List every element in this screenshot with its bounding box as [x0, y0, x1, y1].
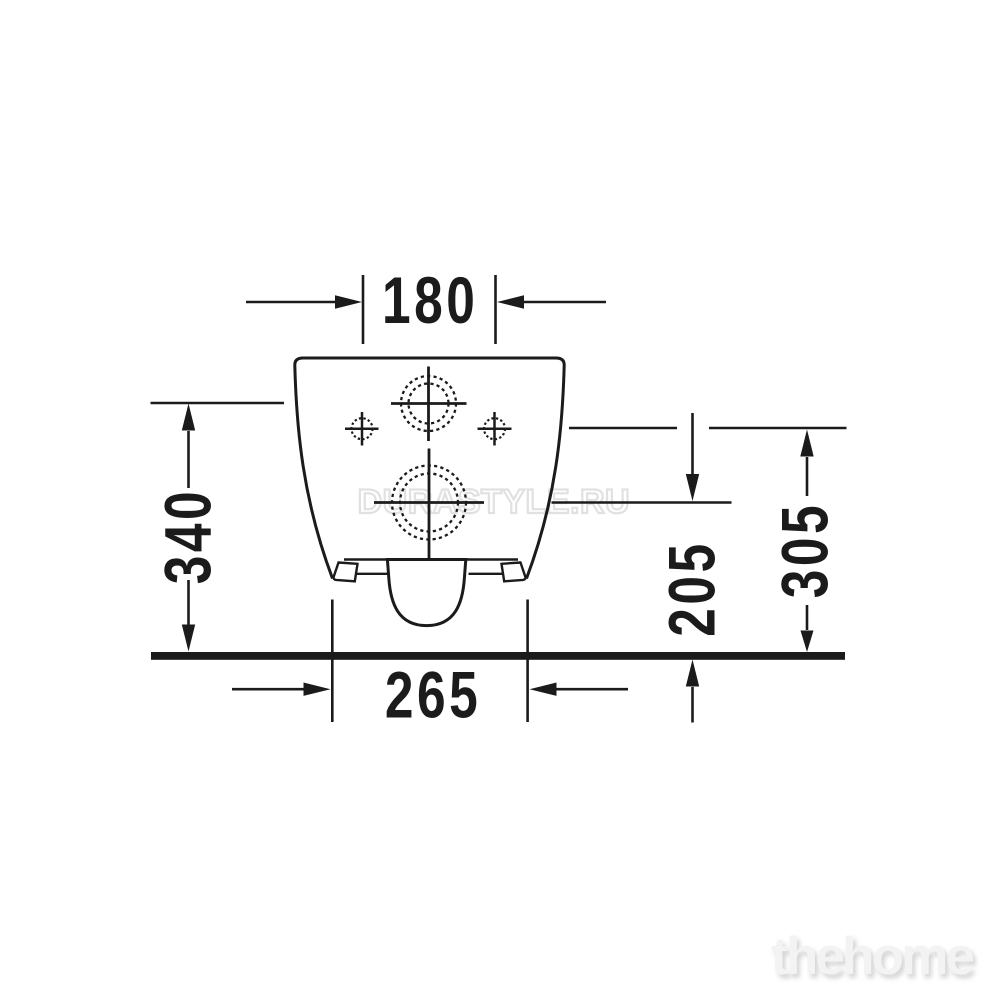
svg-text:180: 180: [382, 263, 478, 338]
svg-text:205: 205: [654, 540, 729, 636]
svg-text:305: 305: [767, 502, 842, 598]
svg-text:340: 340: [150, 488, 225, 584]
svg-text:thehome: thehome: [771, 927, 975, 986]
svg-text:265: 265: [385, 657, 481, 732]
